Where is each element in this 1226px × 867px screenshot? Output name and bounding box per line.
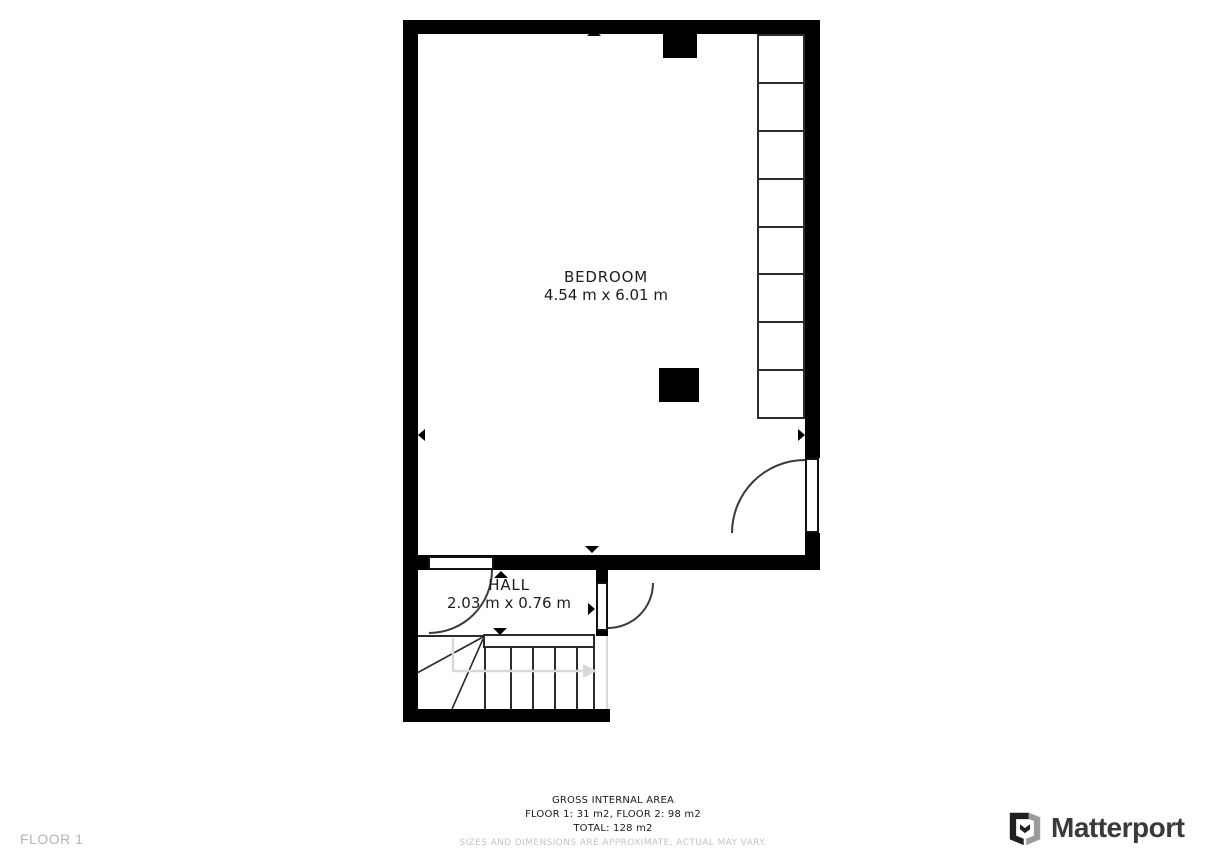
room-dimensions: 4.54 m x 6.01 m [466,286,746,304]
hall-label: HALL 2.03 m x 0.76 m [419,576,599,612]
wardrobe-unit [757,34,805,419]
wall-left [403,20,418,722]
floor-label: FLOOR 1 [20,831,83,847]
dimension-arrow-right-icon [798,429,805,441]
area-summary-title: GROSS INTERNAL AREA [413,794,813,808]
area-summary: GROSS INTERNAL AREA FLOOR 1: 31 m2, FLOO… [413,794,813,850]
matterport-brand: Matterport [1006,810,1184,846]
area-summary-total: TOTAL: 128 m2 [413,822,813,836]
bedroom-door-leaf [805,458,819,533]
wardrobe-shelf [759,228,803,276]
furniture-block [659,368,699,402]
floorplan-page: BEDROOM 4.54 m x 6.01 m HALL 2.03 m x 0.… [0,0,1226,867]
dimension-arrow-down-icon [585,546,599,553]
dimension-arrow-up-icon [587,29,601,36]
wardrobe-shelf [759,180,803,228]
chimney-breast [663,34,697,58]
wardrobe-shelf [759,275,803,323]
hall-entry-door-swing-arc [608,583,654,629]
wall-right-upper [805,20,820,458]
stair-winders-and-direction-arrow [403,628,613,722]
bedroom-label: BEDROOM 4.54 m x 6.01 m [466,268,746,304]
wall-top [403,20,820,34]
room-name: HALL [419,576,599,594]
matterport-logo-icon [1006,810,1044,846]
area-summary-disclaimer: SIZES AND DIMENSIONS ARE APPROXIMATE, AC… [413,836,813,850]
wardrobe-shelf [759,371,803,417]
wardrobe-shelf [759,132,803,180]
matterport-logo-text: Matterport [1051,812,1184,844]
room-name: BEDROOM [466,268,746,286]
wardrobe-shelf [759,36,803,84]
dimension-arrow-left-icon [406,603,413,615]
stair-direction-arrow-icon [583,664,597,678]
hall-bedroom-door-leaf [428,556,494,570]
bedroom-door-swing-arc [731,459,805,533]
area-summary-floors: FLOOR 1: 31 m2, FLOOR 2: 98 m2 [413,808,813,822]
wardrobe-shelf [759,84,803,132]
room-dimensions: 2.03 m x 0.76 m [419,594,599,612]
wardrobe-shelf [759,323,803,371]
dimension-arrow-down-icon [493,628,507,635]
dimension-arrow-left-icon [418,429,425,441]
